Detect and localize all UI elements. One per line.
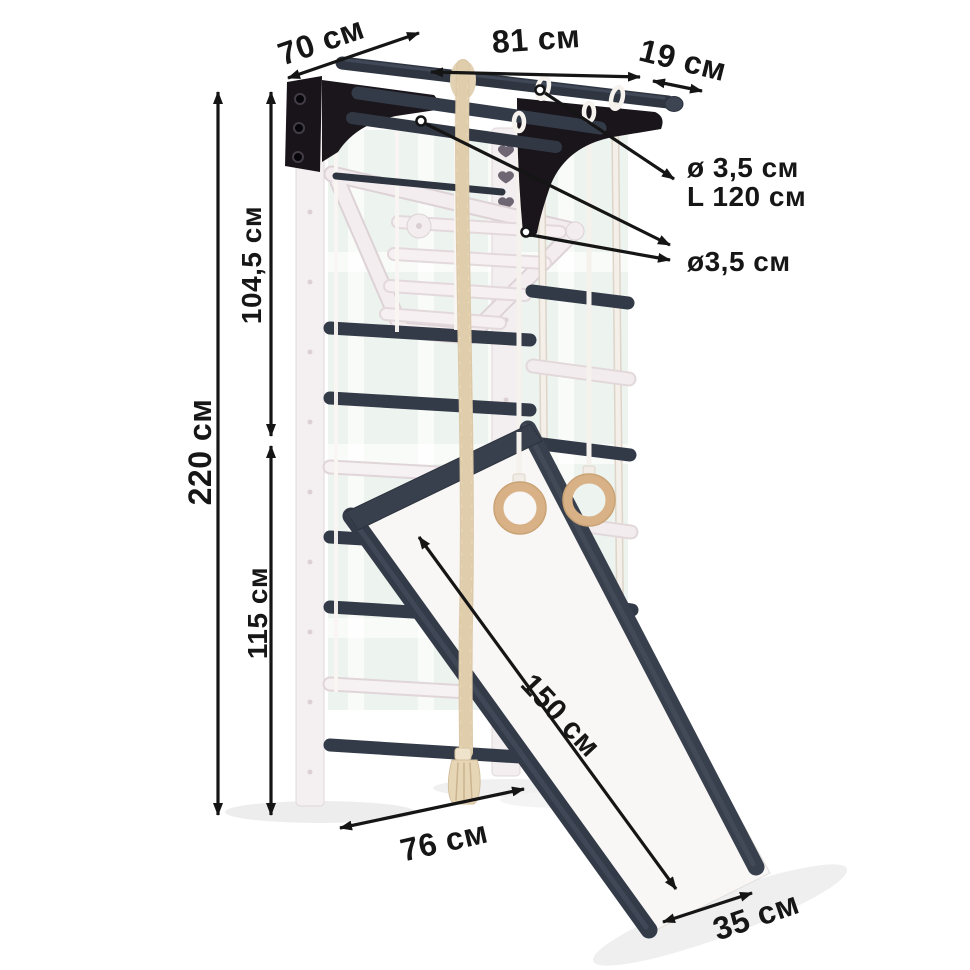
dim-total-height-label: 220 см: [184, 399, 216, 506]
left-stile: [296, 84, 324, 806]
dim-lower-height-label: 115 см: [244, 567, 272, 659]
dim-top-width-label: 81 см: [491, 20, 581, 58]
bar-end-cap: [665, 97, 683, 112]
bar-spec-length-label: L 120 см: [687, 183, 806, 211]
product-dimension-diagram: 70 см 81 см 19 см 104,5 см 220 см 115 см…: [0, 0, 970, 970]
rung-diameter-label: ø3,5 см: [687, 248, 791, 276]
dim-upper-height-label: 104,5 см: [238, 206, 266, 324]
bar-spec-diameter-label: ø 3,5 см: [687, 154, 799, 182]
dim-line-bar-overhang: [653, 81, 702, 91]
